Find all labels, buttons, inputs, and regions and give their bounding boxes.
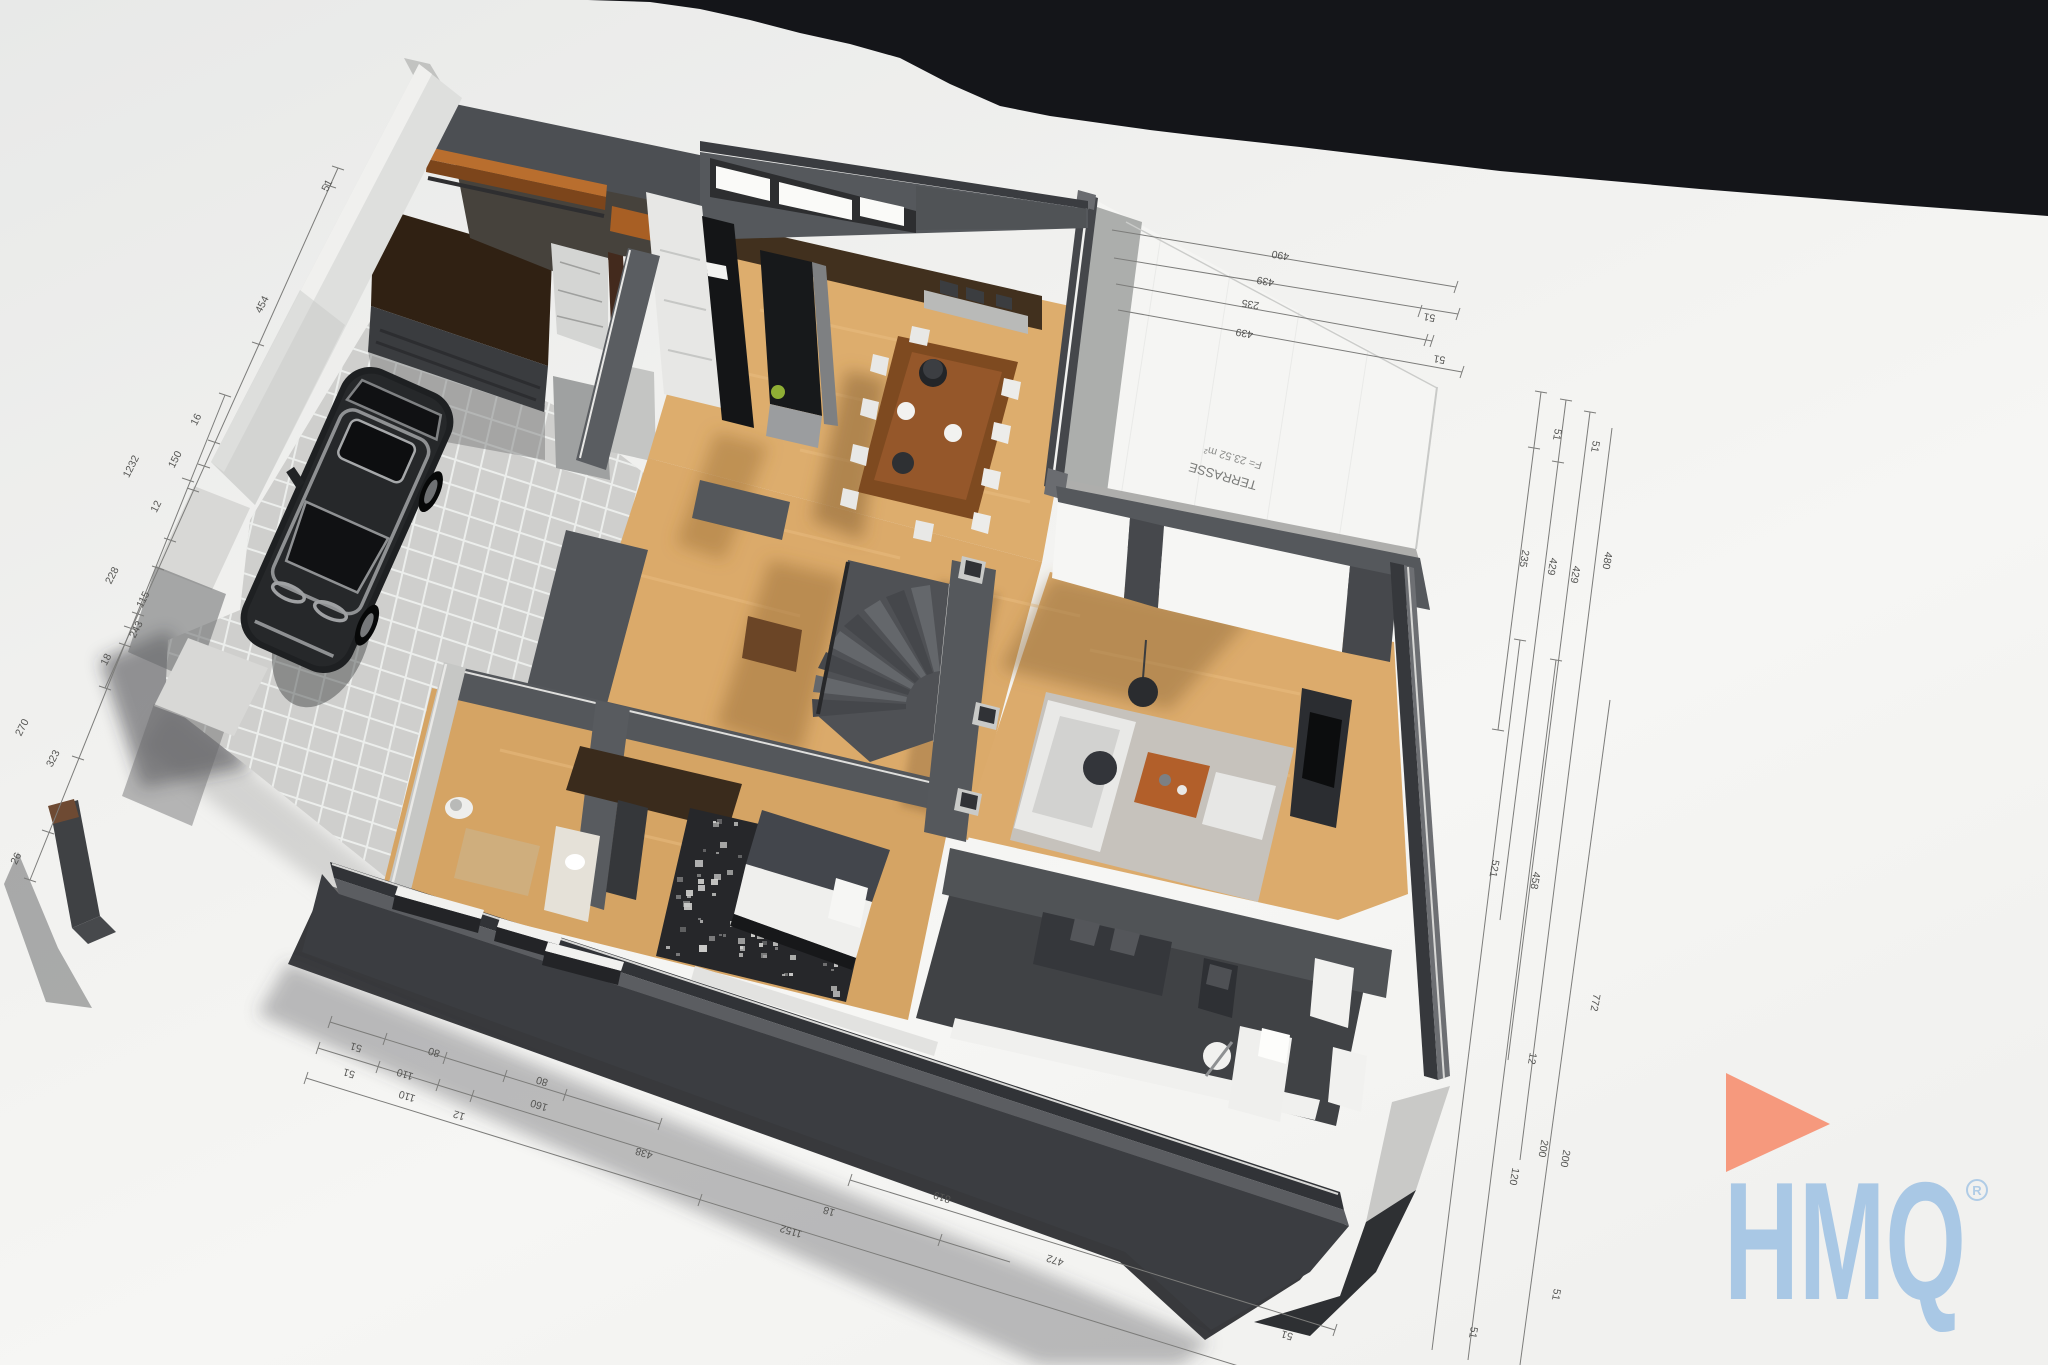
svg-text:12: 12 <box>1525 1052 1539 1066</box>
svg-text:HMQ: HMQ <box>1724 1147 1966 1335</box>
svg-text:51: 51 <box>1549 1288 1563 1302</box>
svg-text:51: 51 <box>1588 440 1602 454</box>
svg-text:51: 51 <box>1466 1326 1480 1340</box>
svg-text:51: 51 <box>1423 310 1437 324</box>
svg-text:51: 51 <box>1550 428 1564 442</box>
svg-text:R: R <box>1972 1183 1982 1198</box>
svg-text:51: 51 <box>1433 352 1447 366</box>
